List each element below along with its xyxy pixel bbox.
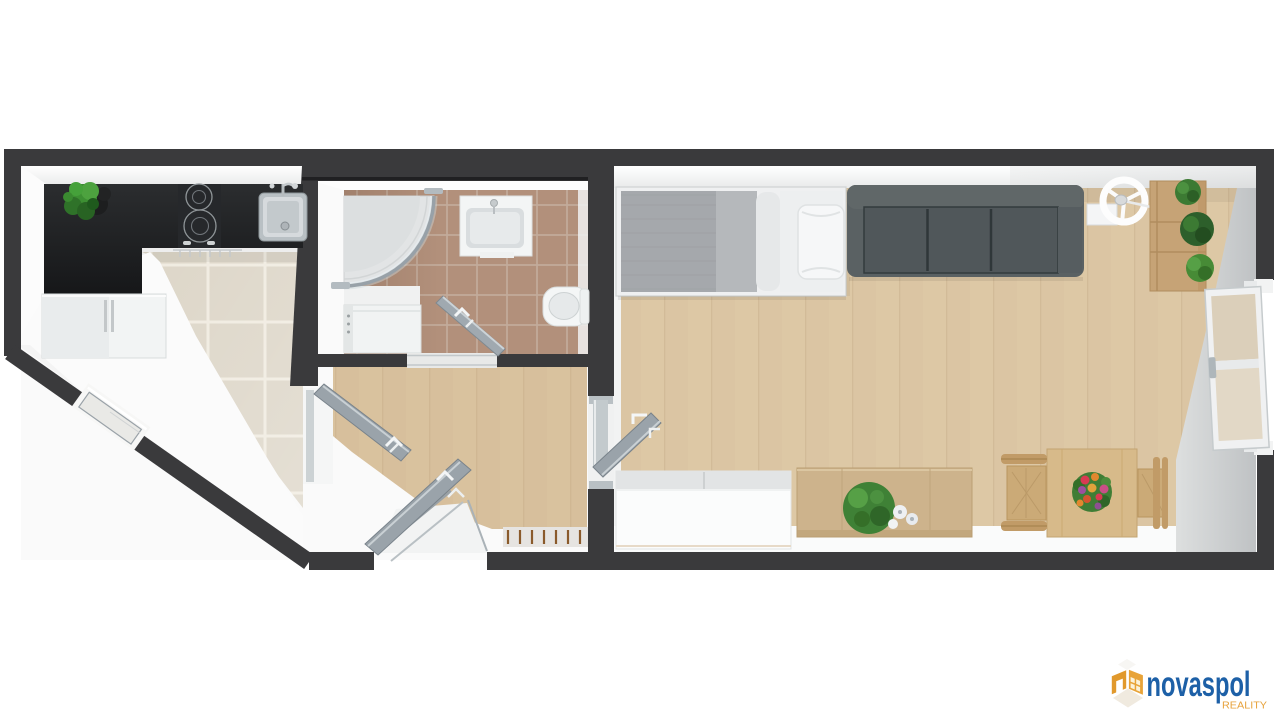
svg-text:novaspol: novaspol (1147, 665, 1251, 704)
svg-text:REALITY: REALITY (1222, 700, 1267, 712)
